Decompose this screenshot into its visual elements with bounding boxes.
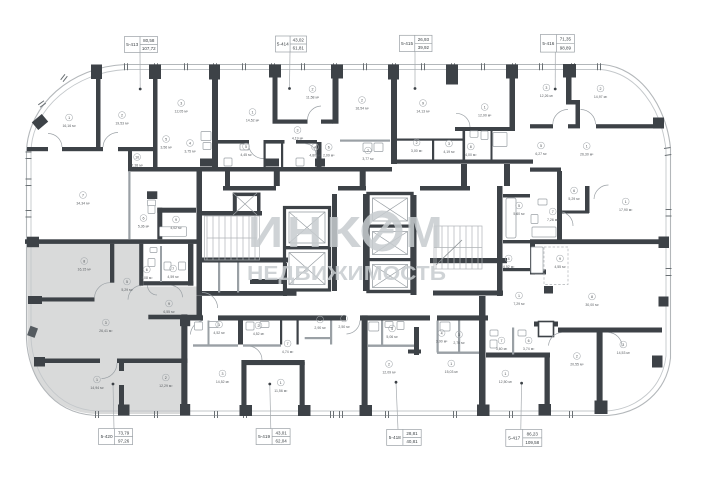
svg-text:2: 2 [165, 376, 167, 380]
svg-text:14,52 м²: 14,52 м² [216, 380, 230, 384]
svg-text:3: 3 [458, 333, 460, 337]
svg-text:12,26 м²: 12,26 м² [540, 94, 554, 98]
svg-text:7: 7 [501, 339, 503, 343]
svg-text:1: 1 [504, 372, 506, 376]
svg-text:9: 9 [168, 302, 170, 306]
svg-text:4,59 м²: 4,59 м² [167, 275, 179, 279]
svg-text:28,81: 28,81 [406, 431, 418, 436]
svg-text:4,00 м²: 4,00 м² [465, 153, 477, 157]
svg-text:1: 1 [450, 362, 452, 366]
svg-text:4,52 м²: 4,52 м² [253, 332, 265, 336]
svg-text:К: К [326, 208, 361, 257]
svg-text:11,56 м²: 11,56 м² [274, 389, 288, 393]
svg-text:2,09 м²: 2,09 м² [323, 153, 335, 157]
svg-text:3,90 м²: 3,90 м² [436, 339, 448, 343]
svg-text:6: 6 [143, 216, 145, 220]
svg-text:1: 1 [252, 110, 254, 114]
svg-text:3: 3 [622, 343, 624, 347]
svg-text:5,06 м²: 5,06 м² [386, 335, 398, 339]
svg-text:14,97 м²: 14,97 м² [594, 95, 608, 99]
svg-text:5-419: 5-419 [258, 434, 270, 439]
svg-text:5,29 м²: 5,29 м² [121, 288, 133, 292]
svg-text:39,92: 39,92 [418, 45, 430, 50]
svg-text:9: 9 [422, 101, 424, 105]
svg-text:3: 3 [297, 128, 299, 132]
svg-text:5,36 м²: 5,36 м² [138, 224, 150, 228]
svg-text:2,90 м²: 2,90 м² [314, 326, 326, 330]
svg-text:2: 2 [312, 87, 314, 91]
svg-text:73,79: 73,79 [118, 430, 130, 435]
svg-text:107,72: 107,72 [142, 46, 156, 51]
svg-text:3: 3 [222, 372, 224, 376]
svg-text:3: 3 [105, 321, 107, 325]
svg-text:Н: Н [287, 208, 322, 257]
svg-text:16,54 м²: 16,54 м² [355, 106, 369, 110]
svg-text:11,58 м²: 11,58 м² [306, 95, 320, 99]
svg-text:9: 9 [175, 218, 177, 222]
svg-text:5: 5 [165, 137, 167, 141]
svg-text:4,45 м²: 4,45 м² [240, 153, 252, 157]
svg-text:5: 5 [126, 280, 128, 284]
svg-text:3,08 м²: 3,08 м² [141, 276, 153, 280]
svg-text:10: 10 [135, 155, 139, 159]
svg-text:2: 2 [388, 362, 390, 366]
svg-text:26,93: 26,93 [418, 37, 430, 42]
svg-text:4,02 м²: 4,02 м² [170, 226, 182, 230]
svg-text:4,52 м²: 4,52 м² [503, 265, 515, 269]
svg-text:109,58: 109,58 [525, 440, 539, 445]
svg-text:71,35: 71,35 [560, 37, 572, 42]
svg-text:6,55 м²: 6,55 м² [163, 310, 175, 314]
svg-text:62,04: 62,04 [275, 438, 287, 443]
svg-text:15,03 м²: 15,03 м² [445, 370, 459, 374]
svg-text:6,27 м²: 6,27 м² [535, 152, 547, 156]
svg-text:5: 5 [319, 318, 321, 322]
svg-text:2,76 м²: 2,76 м² [453, 341, 465, 345]
svg-text:1: 1 [218, 323, 220, 327]
svg-text:3,56 м²: 3,56 м² [160, 145, 172, 149]
svg-text:3,00 м²: 3,00 м² [411, 149, 423, 153]
svg-text:1: 1 [625, 200, 627, 204]
svg-text:5-415: 5-415 [401, 41, 413, 46]
svg-text:7: 7 [552, 210, 554, 214]
svg-text:5-414: 5-414 [277, 42, 289, 47]
svg-text:16,16 м²: 16,16 м² [62, 124, 76, 128]
svg-text:4,19 м²: 4,19 м² [292, 136, 304, 140]
svg-text:14,13 м²: 14,13 м² [416, 109, 430, 113]
svg-text:4,74 м²: 4,74 м² [282, 350, 294, 354]
svg-text:26,30 м²: 26,30 м² [580, 152, 594, 156]
svg-text:20,55 м²: 20,55 м² [570, 362, 584, 366]
svg-text:12,50 м²: 12,50 м² [499, 380, 513, 384]
svg-text:5: 5 [391, 327, 393, 331]
svg-text:4: 4 [508, 257, 510, 261]
svg-text:12,05 м²: 12,05 м² [175, 109, 189, 113]
svg-text:14,53 м²: 14,53 м² [617, 351, 631, 355]
svg-text:5-417: 5-417 [508, 436, 520, 441]
svg-text:12,09 м²: 12,09 м² [382, 370, 396, 374]
svg-text:5,29 м²: 5,29 м² [568, 197, 580, 201]
svg-text:34,34 м²: 34,34 м² [76, 201, 90, 205]
svg-text:40,81: 40,81 [406, 439, 418, 444]
svg-text:3,74 м²: 3,74 м² [523, 347, 535, 351]
svg-text:86,23: 86,23 [527, 431, 539, 436]
svg-text:4: 4 [189, 141, 191, 145]
svg-text:2: 2 [361, 98, 363, 102]
svg-text:4: 4 [441, 331, 443, 335]
svg-text:4: 4 [314, 145, 316, 149]
svg-text:61,81: 61,81 [293, 46, 305, 51]
svg-text:5: 5 [245, 145, 247, 149]
svg-text:3,75 м²: 3,75 м² [184, 149, 196, 153]
svg-text:5-413: 5-413 [126, 42, 138, 47]
svg-text:1: 1 [280, 381, 282, 385]
svg-text:3: 3 [545, 86, 547, 90]
svg-text:2: 2 [416, 141, 418, 145]
svg-text:1: 1 [96, 378, 98, 382]
svg-text:2: 2 [121, 113, 123, 117]
svg-text:43,02: 43,02 [293, 38, 305, 43]
svg-text:26,41 м²: 26,41 м² [99, 329, 113, 333]
svg-text:7: 7 [367, 149, 369, 153]
svg-text:1: 1 [586, 144, 588, 148]
svg-text:9: 9 [559, 257, 561, 261]
svg-text:2: 2 [576, 354, 578, 358]
svg-text:97,26: 97,26 [118, 438, 130, 443]
svg-text:1: 1 [518, 294, 520, 298]
svg-text:7,26 м²: 7,26 м² [547, 218, 559, 222]
svg-text:3,60 м²: 3,60 м² [496, 347, 508, 351]
svg-text:6: 6 [146, 268, 148, 272]
svg-text:НЕДВИЖИМОСТЬ: НЕДВИЖИМОСТЬ [247, 263, 446, 285]
svg-text:4,19 м²: 4,19 м² [443, 150, 455, 154]
svg-text:8: 8 [83, 259, 85, 263]
svg-text:5: 5 [518, 204, 520, 208]
svg-text:6: 6 [528, 339, 530, 343]
svg-text:М: М [406, 208, 443, 257]
svg-text:2,50 м²: 2,50 м² [338, 325, 350, 329]
svg-text:16,15 м²: 16,15 м² [78, 267, 92, 271]
svg-text:4,55 м²: 4,55 м² [554, 265, 566, 269]
svg-text:8: 8 [591, 295, 593, 299]
svg-text:4,80 м²: 4,80 м² [309, 153, 321, 157]
svg-text:3: 3 [448, 142, 450, 146]
svg-text:2: 2 [600, 87, 602, 91]
svg-text:8: 8 [470, 145, 472, 149]
svg-text:4,52 м²: 4,52 м² [213, 331, 225, 335]
svg-text:6: 6 [343, 317, 345, 321]
svg-text:98,89: 98,89 [560, 45, 572, 50]
svg-text:7,29 м²: 7,29 м² [513, 302, 525, 306]
svg-text:17,90 м²: 17,90 м² [619, 208, 633, 212]
svg-text:5-418: 5-418 [389, 435, 401, 440]
svg-text:7: 7 [82, 193, 84, 197]
svg-text:5-416: 5-416 [542, 41, 554, 46]
svg-text:6: 6 [328, 145, 330, 149]
svg-text:6: 6 [573, 189, 575, 193]
svg-text:1: 1 [68, 116, 70, 120]
svg-text:3,77 м²: 3,77 м² [362, 157, 374, 161]
svg-text:2: 2 [258, 324, 260, 328]
svg-text:14,94 м²: 14,94 м² [90, 386, 104, 390]
svg-text:7: 7 [287, 342, 289, 346]
svg-text:5,60 м²: 5,60 м² [513, 212, 525, 216]
svg-text:5-420: 5-420 [101, 434, 113, 439]
svg-text:12,29 м²: 12,29 м² [159, 384, 173, 388]
svg-text:5: 5 [540, 144, 542, 148]
svg-text:80,58: 80,58 [143, 38, 155, 43]
svg-text:И: И [248, 208, 283, 257]
svg-text:7: 7 [172, 267, 174, 271]
svg-text:12,90 м²: 12,90 м² [478, 113, 492, 117]
svg-text:43,01: 43,01 [275, 430, 287, 435]
svg-text:19,53 м²: 19,53 м² [115, 121, 129, 125]
svg-text:7,38 м²: 7,38 м² [131, 163, 143, 167]
svg-text:14,52 м²: 14,52 м² [246, 118, 260, 122]
svg-text:3: 3 [180, 101, 182, 105]
svg-text:30,00 м²: 30,00 м² [585, 303, 599, 307]
svg-text:1: 1 [484, 105, 486, 109]
